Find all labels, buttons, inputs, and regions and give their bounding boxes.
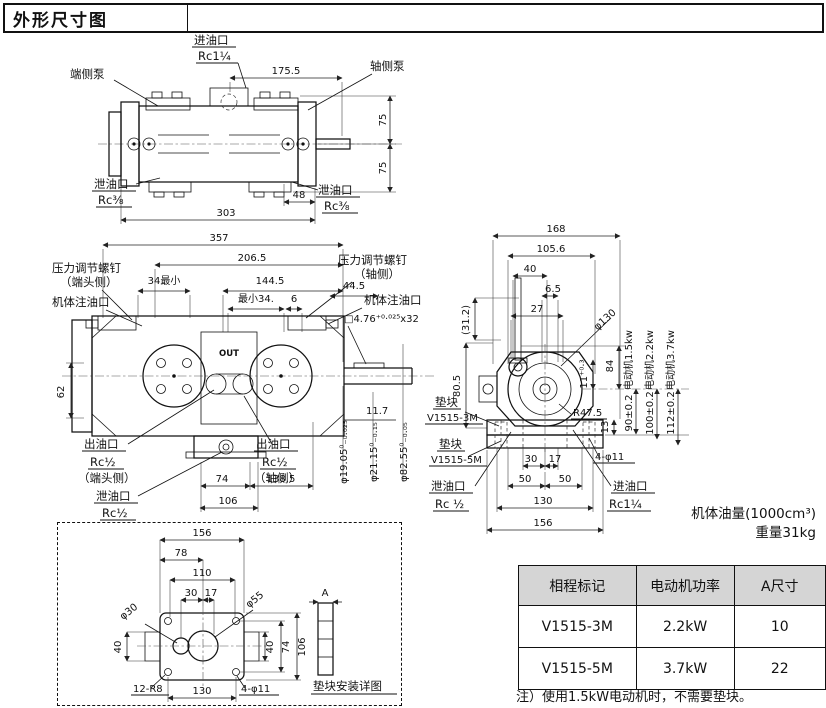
side-view-dimensions-right: φ130 R47.5 11⁺⁰·³ 84 13 电动机1.5kw 电动机2.2k… (521, 307, 689, 445)
dim-40: 40 (524, 264, 537, 275)
dim-78: 78 (175, 548, 188, 559)
a-size-cell: 10 (734, 606, 825, 648)
dim-84: 84 (605, 360, 616, 373)
dim-110: 110 (192, 568, 211, 579)
drain-port-right-label: 泄油口 (318, 183, 353, 197)
pressure-screw-end-label: 压力调节螺钉 (52, 261, 121, 275)
drain-port-left-label: 泄油口 (94, 177, 129, 191)
dim-50a: 50 (519, 474, 532, 485)
dim-138-5: 138.5 (267, 474, 296, 485)
front-view-labels-top: 压力调节螺钉 （端头侧） 机体注油口 压力调节螺钉 （轴侧） 机体注油口 □4.… (52, 253, 422, 364)
power-cell: 3.7kW (636, 648, 734, 690)
front-view-drawing: 357 206.5 34最小 144.5 最小34. 6 44.5 压力调节螺钉… (44, 220, 448, 520)
col-header-motor-power: 电动机功率 (636, 566, 734, 606)
table-row: V1515-5M 3.7kW 22 (519, 648, 826, 690)
detail-dimensions-bottom: 12-R8 130 4-φ11 (131, 675, 279, 702)
motor-power-table: 相程标记 电动机功率 A尺寸 V1515-3M 2.2kW 10 V1515-5… (518, 565, 826, 690)
dim-50b: 50 (559, 474, 572, 485)
catalog-page: 外形尺寸图 (0, 0, 826, 708)
pressure-screw-shaft-side: （轴侧） (354, 267, 400, 281)
drain-port-size: Rc½ (102, 506, 127, 520)
dim-75-bottom: 75 (378, 162, 389, 175)
motor-3-7kw-label: 电动机3.7kw (664, 330, 677, 390)
top-view-body (98, 88, 402, 197)
out-marking: OUT (219, 349, 239, 359)
dim-130: 130 (533, 496, 552, 507)
radius-47-5: R47.5 (573, 408, 602, 419)
dim-156: 156 (533, 518, 552, 529)
detail-dimensions-side: 40 φ30 φ55 40 74 106 (113, 590, 308, 680)
col-header-a-size: A尺寸 (734, 566, 825, 606)
body-fill-port-left-label: 机体注油口 (52, 295, 110, 309)
detail-strip-view: A 垫块安装详图 (309, 588, 397, 694)
dim-34-min: 34最小 (148, 275, 181, 287)
dim-357: 357 (209, 233, 228, 244)
detail-dimensions-top: 156 78 110 30 17 (160, 528, 244, 638)
detail-plate (137, 606, 267, 688)
dim-a: A (322, 588, 329, 599)
dia-82-55: φ82.55⁰₋₀.₀₅ (399, 422, 410, 482)
side-view-labels: 垫块 V1515-3M 垫块 V1515-5M 泄油口 Rc ½ 进油口 Rc1… (425, 395, 655, 511)
dim-6: 6 (291, 294, 297, 305)
footnote: 注）使用1.5kW电动机时，不需要垫块。 (516, 686, 752, 705)
title-bar: 外形尺寸图 (3, 3, 824, 33)
front-view-labels-bottom: 出油口 Rc½ （端头侧） 泄油口 Rc½ 出油口 Rc½ （轴侧） 74 13… (78, 390, 313, 520)
table-row: V1515-3M 2.2kW 10 (519, 606, 826, 648)
dim-303: 303 (216, 208, 235, 219)
inlet-port-size: Rc1¼ (198, 49, 231, 63)
dim-13: 13 (600, 421, 611, 434)
dim-min-34: 最小34. (238, 293, 274, 305)
drain-port-label: 泄油口 (96, 489, 131, 503)
inlet-port-size: Rc1¼ (609, 497, 642, 511)
drain-port-size: Rc ½ (435, 497, 464, 511)
dim-30: 30 (185, 588, 198, 599)
detail-caption: 垫块安装详图 (313, 679, 382, 693)
title-cell: 外形尺寸图 (5, 5, 188, 31)
dia-55: φ55 (244, 590, 266, 611)
side-view-dimensions-bottom: 30 17 50 50 130 156 (487, 448, 603, 534)
capacity-weight-note: 机体油量(1000cm³) 重量31kg (640, 505, 816, 543)
front-view-dimensions-top: 357 206.5 34最小 144.5 最小34. 6 44.5 (103, 233, 378, 362)
dim-74: 74 (281, 641, 292, 654)
dim-106: 106 (297, 637, 308, 656)
top-view-drawing: 175.5 75 75 48 303 进油口 Rc1¼ 端侧泵 轴侧泵 泄油口 … (46, 32, 446, 232)
corner-radius-label: 12-R8 (133, 684, 163, 695)
dim-30: 30 (525, 454, 538, 465)
spacer-5m-model: V1515-5M (431, 455, 482, 466)
dim-31-2: (31.2) (461, 305, 472, 335)
dim-130: 130 (192, 686, 211, 697)
motor-2-2kw-label: 电动机2.2kw (643, 330, 656, 390)
outlet-left-side: （端头侧） (78, 471, 136, 485)
dim-74: 74 (216, 474, 229, 485)
dim-168: 168 (546, 224, 565, 235)
pressure-screw-shaft-label: 压力调节螺钉 (338, 253, 407, 267)
inlet-port-label: 进油口 (194, 33, 229, 47)
pressure-screw-end-side: （端头侧） (60, 275, 118, 289)
dim-156: 156 (192, 528, 211, 539)
dim-80-5: 80.5 (452, 375, 463, 397)
shaft-key-dim: □4.76⁺⁰·⁰²⁵x32 (344, 314, 419, 325)
model-cell: V1515-5M (519, 648, 637, 690)
motor-1-5kw-label: 电动机1.5kw (622, 330, 635, 390)
dim-144-5: 144.5 (256, 276, 285, 287)
dia-19-05: φ19.05⁰₋₀.₀₂₅ (339, 420, 350, 484)
dim-40-left: 40 (113, 641, 124, 654)
col-header-designation: 相程标记 (519, 566, 637, 606)
outlet-left-label: 出油口 (84, 437, 119, 451)
side-view-drawing: 168 105.6 40 6.5 27 (31.2) 80.5 (423, 214, 695, 554)
spacer-detail-drawing: 156 78 110 30 17 40 (57, 522, 402, 706)
top-view-labels: 进油口 Rc1¼ 端侧泵 轴侧泵 泄油口 Rc⅜ 泄油口 Rc⅜ (70, 33, 405, 213)
spacer-3m-model: V1515-3M (427, 413, 478, 424)
dia-21-15: φ21.15⁰₋₀.₁₅ (369, 422, 380, 482)
spacer-5m-label: 垫块 (439, 437, 462, 451)
power-cell: 2.2kW (636, 606, 734, 648)
dim-75-top: 75 (378, 114, 389, 127)
dim-106: 106 (218, 496, 237, 507)
body-oil-capacity: 机体油量(1000cm³) (640, 505, 816, 524)
body-fill-port-right-label: 机体注油口 (364, 293, 422, 307)
spacer-3m-label: 垫块 (435, 395, 458, 409)
dim-6-5: 6.5 (545, 284, 561, 295)
dim-112: 112±0.2 (666, 391, 677, 434)
dia-130: φ130 (592, 307, 618, 332)
end-pump-label: 端侧泵 (70, 67, 105, 81)
dim-105-6: 105.6 (537, 244, 566, 255)
drain-port-right-size: Rc⅜ (324, 199, 349, 213)
dim-11-7: 11.7 (366, 406, 388, 417)
outlet-right-size: Rc½ (262, 455, 287, 469)
dim-100: 100±0.2 (645, 391, 656, 434)
drain-port-label: 泄油口 (431, 479, 466, 493)
dia-30: φ30 (118, 602, 140, 623)
dim-11: 11⁺⁰·³ (579, 359, 590, 388)
dim-206-5: 206.5 (238, 253, 267, 264)
page-title: 外形尺寸图 (5, 6, 108, 31)
drain-port-left-size: Rc⅜ (98, 193, 123, 207)
dim-175-5: 175.5 (272, 66, 301, 77)
dim-27: 27 (531, 304, 544, 315)
outlet-left-size: Rc½ (90, 455, 115, 469)
weight: 重量31kg (640, 524, 816, 543)
shaft-pump-label: 轴侧泵 (370, 59, 405, 73)
model-cell: V1515-3M (519, 606, 637, 648)
a-size-cell: 22 (734, 648, 825, 690)
outlet-right-label: 出油口 (256, 437, 291, 451)
dim-17: 17 (549, 454, 562, 465)
top-view-dimensions: 175.5 75 75 48 303 (121, 66, 396, 224)
bolt-holes-label: 4-φ11 (595, 452, 624, 463)
inlet-port-label: 进油口 (613, 479, 648, 493)
table-header-row: 相程标记 电动机功率 A尺寸 (519, 566, 826, 606)
dim-90: 90±0.2 (624, 394, 635, 431)
dim-40-right: 40 (265, 641, 276, 654)
dim-62: 62 (56, 386, 67, 399)
dim-48: 48 (293, 190, 306, 201)
bolt-holes-label: 4-φ11 (241, 684, 270, 695)
dim-17: 17 (205, 588, 218, 599)
